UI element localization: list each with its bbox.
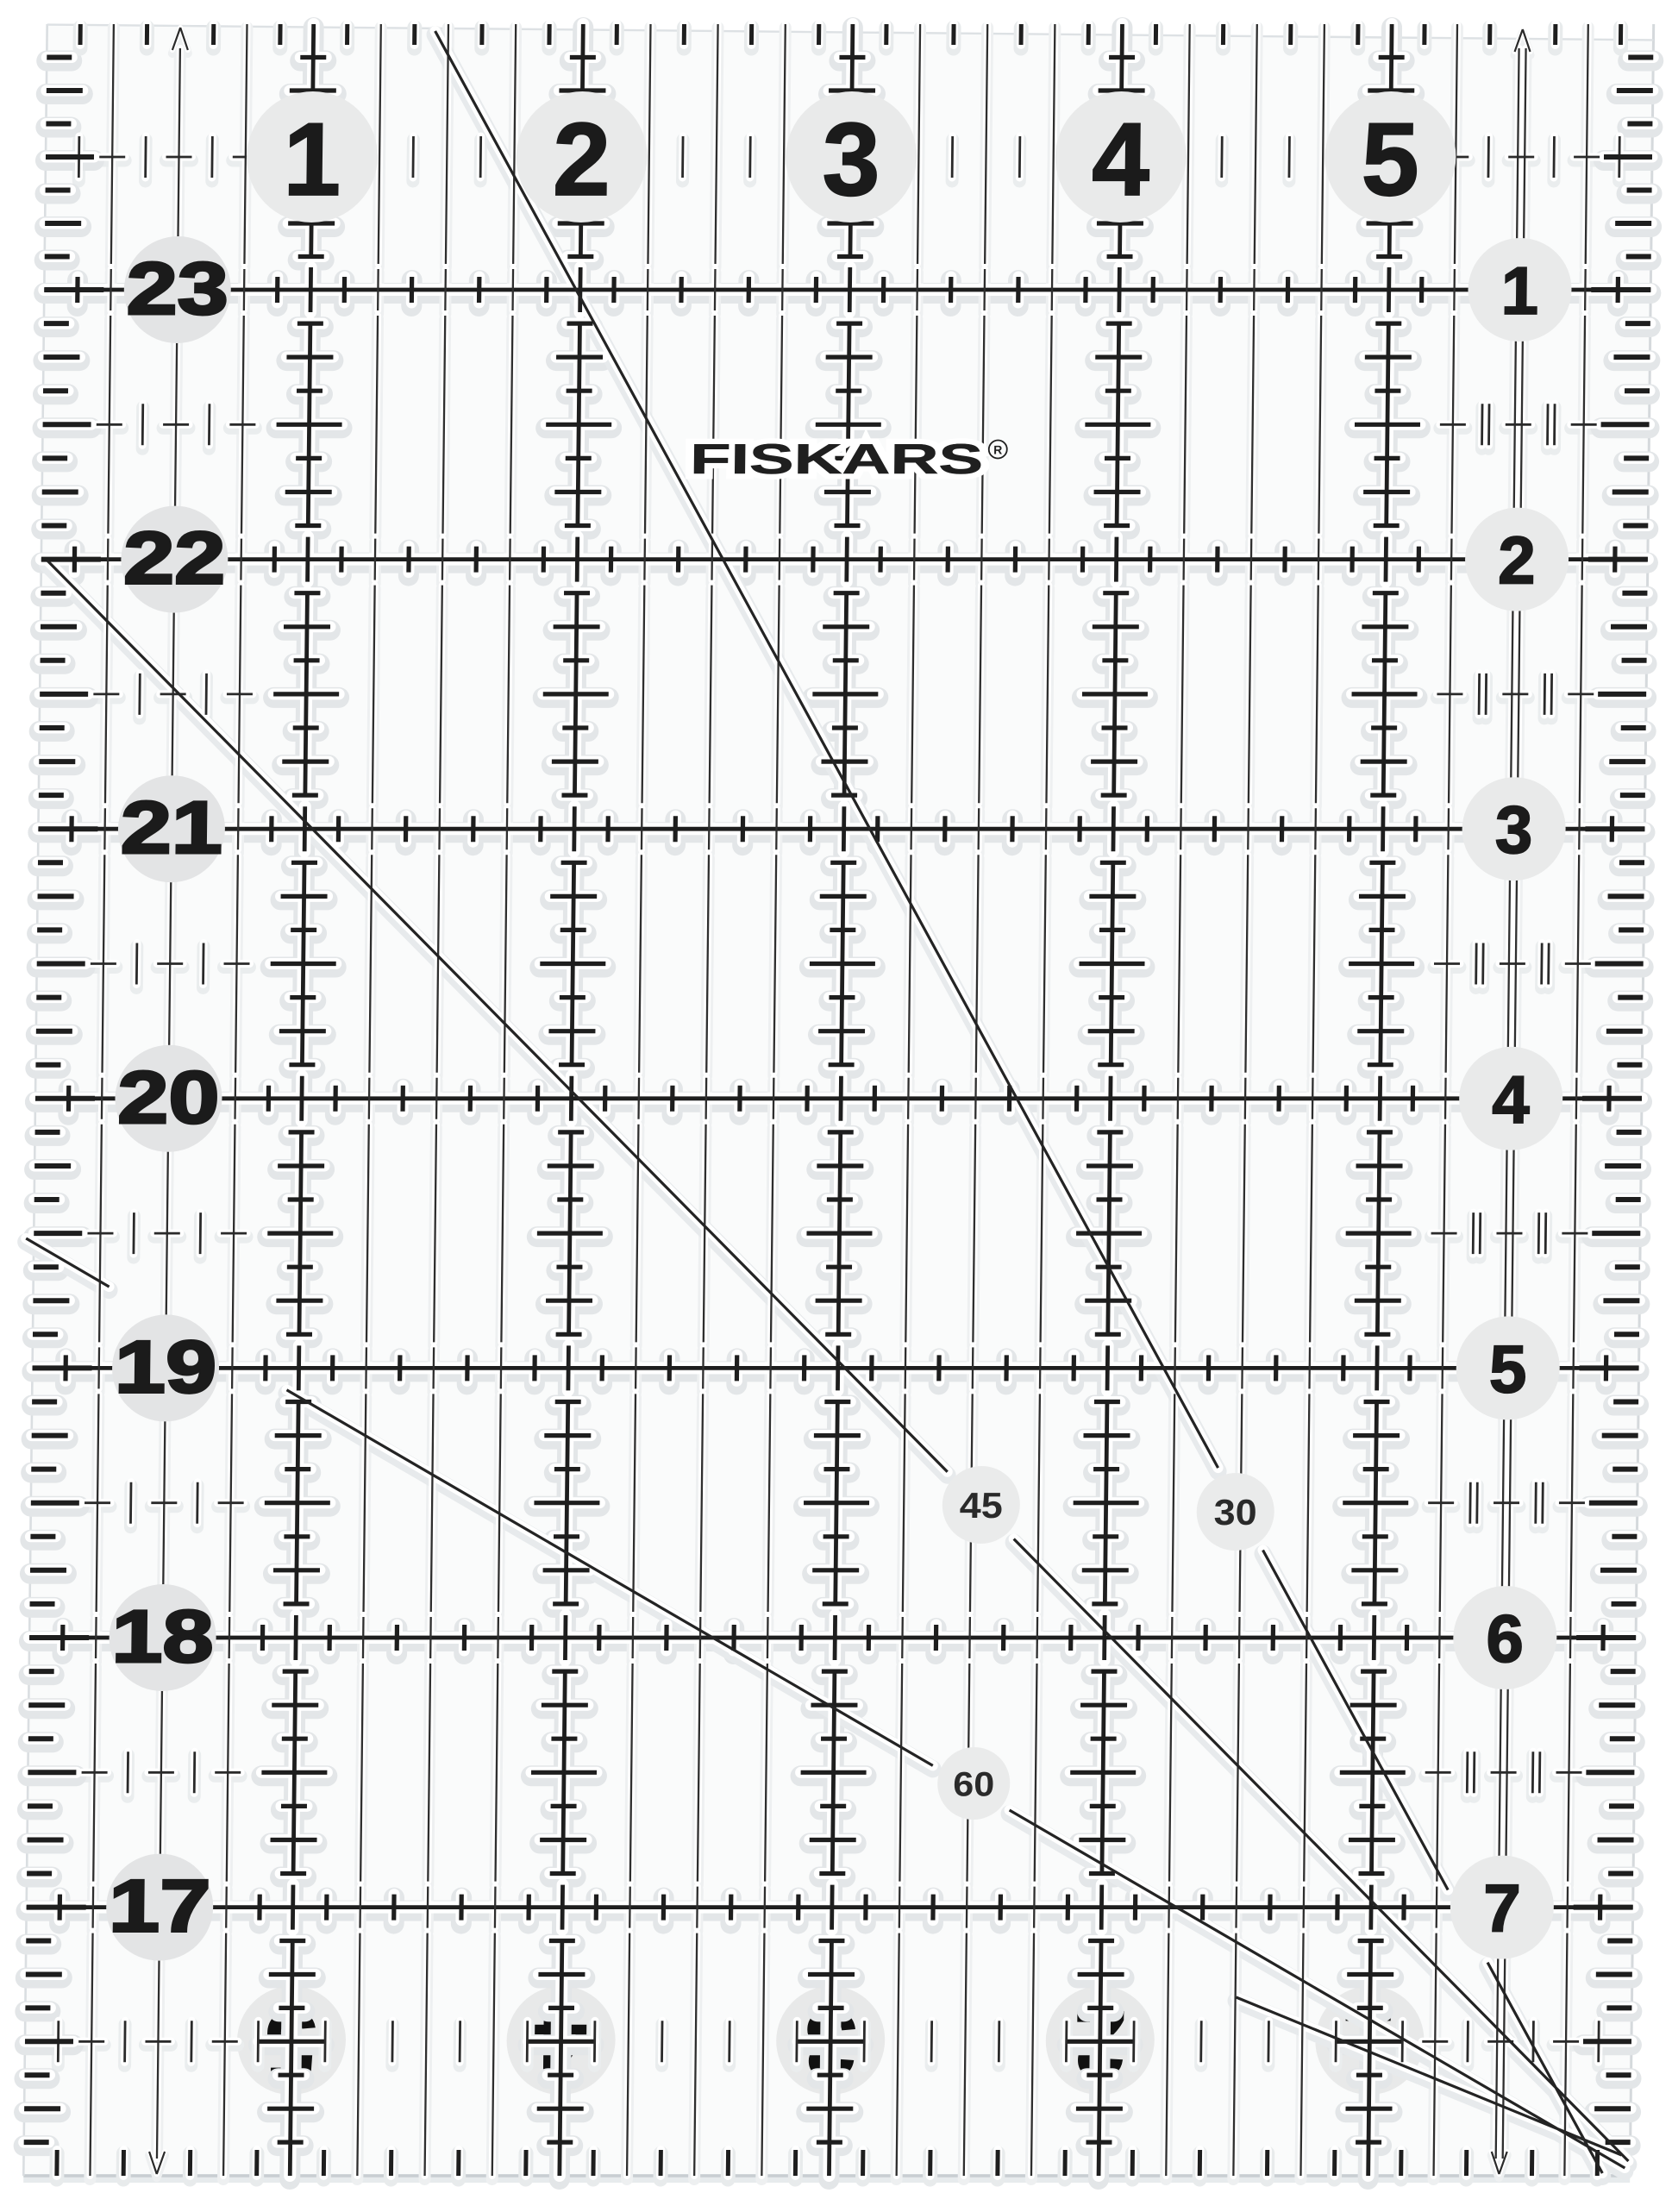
svg-text:60: 60 [953,1765,994,1803]
svg-text:FISKARS: FISKARS [690,436,984,483]
svg-text:3: 3 [822,102,880,217]
svg-text:4: 4 [1092,102,1150,217]
svg-text:45: 45 [960,1485,1004,1526]
svg-text:5: 5 [1361,102,1419,217]
svg-text:R: R [993,443,1002,457]
svg-text:3: 3 [1494,792,1532,868]
svg-text:4: 4 [1492,1062,1530,1137]
svg-text:21: 21 [120,786,222,869]
svg-text:17: 17 [109,1865,211,1948]
svg-text:19: 19 [115,1325,217,1408]
svg-text:7: 7 [1483,1870,1521,1946]
svg-text:1: 1 [283,102,341,217]
svg-text:2: 2 [1498,523,1536,598]
svg-text:22: 22 [123,517,226,600]
svg-text:6: 6 [1486,1601,1524,1676]
svg-text:5: 5 [1489,1331,1527,1407]
svg-text:2: 2 [552,102,611,217]
svg-text:23: 23 [126,248,229,330]
svg-text:1: 1 [1500,253,1538,329]
svg-text:18: 18 [111,1595,214,1678]
svg-text:30: 30 [1213,1492,1257,1532]
svg-text:20: 20 [117,1056,220,1139]
